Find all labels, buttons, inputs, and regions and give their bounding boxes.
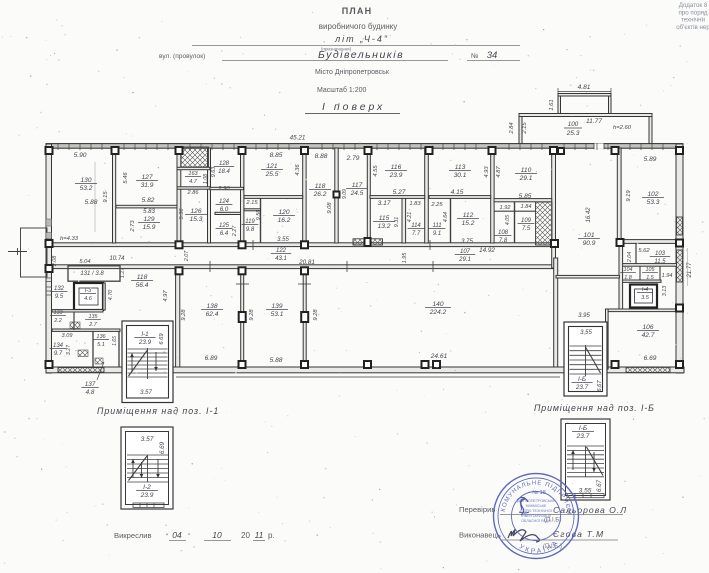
svg-text:4.70: 4.70 (108, 290, 114, 301)
svg-text:13.2: 13.2 (378, 223, 391, 230)
svg-text:106: 106 (642, 324, 653, 331)
svg-text:110: 110 (521, 167, 532, 174)
svg-text:2.08: 2.08 (52, 256, 58, 268)
svg-text:ІНВЕНТАРИЗАЦІЇ: ІНВЕНТАРИЗАЦІЇ (521, 514, 551, 518)
svg-text:62.4: 62.4 (206, 311, 219, 318)
svg-text:11.5: 11.5 (654, 259, 666, 265)
svg-text:6.4: 6.4 (220, 231, 229, 237)
svg-text:11.77: 11.77 (586, 118, 602, 125)
svg-text:3.57: 3.57 (141, 436, 154, 443)
svg-text:3.5: 3.5 (641, 295, 650, 301)
svg-text:128: 128 (219, 161, 230, 167)
svg-text:7.8: 7.8 (499, 238, 508, 244)
svg-text:1.84: 1.84 (521, 204, 532, 210)
svg-text:9.8: 9.8 (246, 227, 255, 233)
svg-text:Перевірив: Перевірив (459, 505, 495, 514)
svg-text:2.27: 2.27 (232, 225, 238, 237)
svg-text:53.2: 53.2 (80, 185, 93, 192)
svg-text:119: 119 (245, 219, 255, 225)
svg-text:2.07: 2.07 (184, 250, 190, 262)
svg-text:20: 20 (241, 531, 250, 540)
svg-text:3.17: 3.17 (378, 200, 391, 207)
svg-text:1.95: 1.95 (402, 252, 408, 263)
svg-text:30.1: 30.1 (454, 172, 467, 179)
svg-text:56.4: 56.4 (136, 282, 149, 289)
svg-text:3.75: 3.75 (461, 239, 473, 245)
svg-text:9.28: 9.28 (249, 309, 255, 321)
svg-text:Приміщення над поз. І-Б: Приміщення над поз. І-Б (534, 403, 655, 413)
svg-text:118: 118 (137, 274, 148, 281)
svg-text:5.46: 5.46 (123, 172, 129, 184)
svg-text:102: 102 (647, 191, 658, 198)
svg-text:45.21: 45.21 (290, 135, 306, 142)
svg-text:4.64: 4.64 (443, 212, 449, 222)
svg-text:І поверх: І поверх (322, 101, 385, 113)
svg-text:І-Б: І-Б (579, 425, 588, 432)
svg-text:р.: р. (268, 531, 275, 540)
svg-text:про поряд: про поряд (678, 9, 707, 16)
svg-text:ДНІПРОПЕТРОВСЬКЕ: ДНІПРОПЕТРОВСЬКЕ (517, 499, 555, 503)
svg-text:2.86: 2.86 (187, 190, 200, 196)
svg-text:53.3: 53.3 (647, 199, 660, 206)
svg-text:І-1: І-1 (141, 331, 148, 338)
svg-text:2.15: 2.15 (245, 200, 258, 206)
svg-text:№ 18: № 18 (532, 490, 546, 496)
svg-text:120: 120 (278, 209, 289, 216)
svg-text:ПЛАН: ПЛАН (342, 6, 373, 16)
svg-text:134: 134 (53, 343, 64, 349)
svg-text:І-2: І-2 (143, 484, 151, 491)
svg-text:23.9: 23.9 (140, 492, 154, 499)
svg-text:1.8: 1.8 (624, 275, 632, 281)
svg-text:7.5: 7.5 (522, 226, 531, 232)
svg-text:2.15: 2.15 (522, 122, 528, 135)
svg-text:І-4: І-4 (642, 287, 649, 293)
svg-text:1.5: 1.5 (646, 275, 654, 281)
svg-text:224.2: 224.2 (429, 309, 447, 316)
svg-text:7.7: 7.7 (412, 231, 421, 237)
svg-text:127: 127 (141, 174, 152, 181)
svg-text:107: 107 (460, 249, 471, 255)
svg-text:5.27: 5.27 (393, 189, 406, 196)
svg-text:5.62: 5.62 (638, 248, 650, 254)
svg-text:9.08: 9.08 (327, 202, 333, 214)
svg-text:100: 100 (568, 121, 579, 128)
svg-text:103: 103 (655, 251, 666, 257)
svg-text:4.87: 4.87 (496, 166, 502, 178)
svg-text:53.1: 53.1 (271, 311, 284, 318)
svg-text:Виконавець: Виконавець (459, 531, 501, 540)
svg-text:4.15: 4.15 (451, 189, 464, 196)
svg-text:МІЖМІСЬКЕ: МІЖМІСЬКЕ (526, 504, 547, 508)
svg-text:9.19: 9.19 (626, 190, 632, 202)
svg-text:121: 121 (266, 163, 277, 170)
svg-text:4.6: 4.6 (84, 296, 93, 302)
svg-text:1.27: 1.27 (120, 267, 126, 278)
svg-text:04: 04 (172, 530, 182, 540)
svg-text:6.69: 6.69 (159, 441, 166, 454)
svg-text:Місто Дніпропетровськ: Місто Дніпропетровськ (315, 68, 390, 76)
svg-text:h=4.33: h=4.33 (60, 236, 79, 242)
svg-text:26.2: 26.2 (313, 191, 327, 198)
svg-text:Додаток 8: Додаток 8 (679, 2, 708, 9)
svg-text:І-Б: І-Б (578, 376, 586, 383)
svg-text:5.1: 5.1 (97, 342, 105, 348)
svg-text:6.69: 6.69 (644, 355, 657, 362)
svg-text:9.1: 9.1 (433, 231, 441, 237)
svg-text:3.57: 3.57 (140, 390, 152, 396)
svg-text:105: 105 (646, 267, 656, 273)
svg-text:11: 11 (255, 530, 264, 540)
svg-text:6.69: 6.69 (159, 333, 165, 345)
svg-text:5.85: 5.85 (519, 193, 532, 200)
svg-text:виробничого будинку: виробничого будинку (319, 22, 397, 31)
svg-text:23.7: 23.7 (576, 433, 590, 440)
svg-text:4.36: 4.36 (295, 164, 301, 176)
svg-text:43.1: 43.1 (275, 256, 287, 262)
svg-text:108: 108 (498, 230, 509, 236)
svg-text:2.73: 2.73 (130, 220, 136, 233)
svg-text:5.88: 5.88 (270, 357, 283, 364)
svg-text:31.9: 31.9 (141, 182, 154, 189)
svg-text:8.88: 8.88 (315, 153, 328, 160)
svg-text:Масштаб 1:200: Масштаб 1:200 (317, 86, 367, 94)
svg-text:29.1: 29.1 (458, 257, 471, 263)
svg-text:163: 163 (188, 171, 198, 177)
svg-text:Будівельників: Будівельників (318, 49, 404, 61)
svg-text:4.21: 4.21 (407, 212, 413, 223)
svg-text:16.2: 16.2 (278, 217, 291, 224)
svg-text:104: 104 (624, 267, 633, 273)
svg-text:9.09: 9.09 (342, 189, 348, 199)
svg-text:об'єктів нер: об'єктів нер (676, 24, 709, 31)
svg-text:1.65: 1.65 (112, 336, 118, 346)
svg-text:18.4: 18.4 (218, 169, 230, 175)
svg-text:111: 111 (432, 223, 441, 229)
svg-text:1.92: 1.92 (500, 205, 512, 211)
svg-text:131 / 3.8: 131 / 3.8 (80, 271, 104, 277)
svg-text:25.5: 25.5 (265, 171, 279, 178)
svg-text:5.83: 5.83 (143, 209, 155, 215)
svg-text:4.8: 4.8 (86, 389, 95, 396)
svg-text:90.9: 90.9 (583, 240, 596, 247)
svg-text:6.0: 6.0 (220, 207, 229, 213)
svg-text:101: 101 (583, 232, 594, 239)
svg-text:5.90: 5.90 (74, 152, 87, 159)
svg-text:Приміщення над поз. І-1: Приміщення над поз. І-1 (97, 406, 219, 416)
svg-text:16.42: 16.42 (586, 207, 592, 223)
svg-text:117: 117 (352, 182, 363, 189)
svg-text:2.25: 2.25 (430, 202, 443, 208)
svg-text:139: 139 (271, 303, 282, 310)
svg-text:42.7: 42.7 (642, 332, 655, 339)
svg-text:5.82: 5.82 (142, 197, 155, 204)
svg-text:132: 132 (54, 286, 65, 292)
svg-text:4.97: 4.97 (163, 290, 169, 302)
svg-text:14.92: 14.92 (479, 247, 495, 254)
svg-text:1.08: 1.08 (203, 174, 209, 184)
svg-text:6.89: 6.89 (205, 355, 218, 362)
svg-text:3.95: 3.95 (578, 313, 590, 319)
svg-text:4.7: 4.7 (189, 179, 198, 185)
svg-text:9.31: 9.31 (394, 217, 400, 228)
svg-text:h=2.60: h=2.60 (613, 125, 632, 131)
svg-text:№: № (471, 53, 479, 60)
svg-text:4.55: 4.55 (373, 165, 379, 177)
svg-text:116: 116 (391, 164, 402, 171)
svg-text:2.04: 2.04 (627, 252, 633, 264)
svg-text:15.2: 15.2 (462, 220, 475, 227)
svg-text:9.15: 9.15 (103, 191, 109, 203)
svg-text:115: 115 (379, 215, 390, 222)
svg-text:129: 129 (143, 216, 154, 223)
svg-text:10.74: 10.74 (109, 256, 125, 262)
svg-text:9.28: 9.28 (181, 309, 187, 321)
svg-text:20.81: 20.81 (298, 259, 315, 266)
svg-text:140: 140 (432, 301, 443, 308)
svg-text:5.36: 5.36 (179, 208, 185, 220)
svg-text:125: 125 (219, 223, 230, 229)
svg-text:23.7: 23.7 (575, 384, 589, 391)
svg-text:літ „Ч-4”: літ „Ч-4” (334, 34, 389, 44)
svg-text:29.1: 29.1 (519, 175, 533, 182)
svg-text:8.85: 8.85 (270, 152, 283, 159)
svg-text:3.27: 3.27 (66, 344, 72, 355)
svg-text:138: 138 (206, 303, 217, 310)
svg-text:24.5: 24.5 (350, 190, 364, 197)
svg-text:114: 114 (411, 223, 421, 229)
svg-text:118: 118 (315, 183, 326, 190)
svg-text:112: 112 (463, 212, 474, 219)
svg-text:3.55: 3.55 (580, 330, 592, 336)
svg-text:136: 136 (96, 334, 106, 340)
svg-text:Викреслив: Викреслив (114, 531, 152, 540)
svg-text:130: 130 (80, 177, 91, 184)
svg-text:“: “ (166, 533, 168, 540)
svg-text:124: 124 (219, 199, 230, 205)
svg-text:”: ” (188, 533, 190, 540)
svg-text:5.88: 5.88 (85, 199, 98, 206)
svg-text:вул. (провулок): вул. (провулок) (159, 53, 205, 60)
svg-text:2.7: 2.7 (88, 322, 97, 328)
svg-text:3.55: 3.55 (277, 237, 289, 243)
svg-text:4.81: 4.81 (578, 84, 591, 91)
svg-text:1.83: 1.83 (409, 201, 421, 207)
svg-text:БЮРО ТЕХНІЧНОЇ: БЮРО ТЕХНІЧНОЇ (520, 509, 551, 513)
svg-text:23.9: 23.9 (138, 339, 152, 346)
svg-text:15.3: 15.3 (190, 216, 203, 223)
svg-text:10: 10 (212, 530, 222, 540)
svg-text:25.3: 25.3 (566, 130, 580, 137)
svg-text:4.93: 4.93 (484, 166, 490, 178)
svg-text:Єгова Т.М: Єгова Т.М (553, 529, 604, 539)
svg-text:2.90: 2.90 (217, 186, 230, 192)
svg-text:6.67: 6.67 (597, 380, 603, 392)
svg-text:15.9: 15.9 (143, 224, 156, 231)
svg-text:1.61: 1.61 (549, 99, 555, 110)
svg-text:5.89: 5.89 (644, 156, 657, 163)
svg-text:6.67: 6.67 (596, 479, 603, 492)
svg-text:ОБЛАСНОЇ РАДИ: ОБЛАСНОЇ РАДИ (521, 519, 551, 523)
svg-text:1.94: 1.94 (662, 273, 673, 279)
svg-text:9.63: 9.63 (211, 167, 217, 178)
svg-text:24.61: 24.61 (430, 353, 448, 360)
svg-text:3.13: 3.13 (662, 286, 668, 297)
svg-text:133: 133 (54, 310, 63, 316)
svg-text:9.56: 9.56 (256, 210, 262, 221)
svg-text:122: 122 (276, 248, 287, 254)
svg-text:21.77: 21.77 (687, 262, 693, 279)
svg-text:9.5: 9.5 (55, 294, 64, 300)
svg-text:5.04: 5.04 (79, 259, 90, 265)
svg-text:137: 137 (85, 381, 96, 388)
svg-text:109: 109 (521, 218, 532, 224)
svg-text:9.7: 9.7 (54, 351, 63, 357)
svg-text:3.09: 3.09 (62, 333, 73, 339)
svg-text:23.9: 23.9 (389, 172, 403, 179)
svg-text:2.2: 2.2 (53, 318, 62, 324)
svg-text:126: 126 (190, 208, 201, 215)
svg-text:135: 135 (89, 314, 99, 320)
svg-text:2.79: 2.79 (346, 155, 360, 162)
svg-text:2.84: 2.84 (509, 122, 515, 134)
svg-text:4.05: 4.05 (505, 215, 511, 225)
svg-text:34: 34 (487, 50, 498, 61)
